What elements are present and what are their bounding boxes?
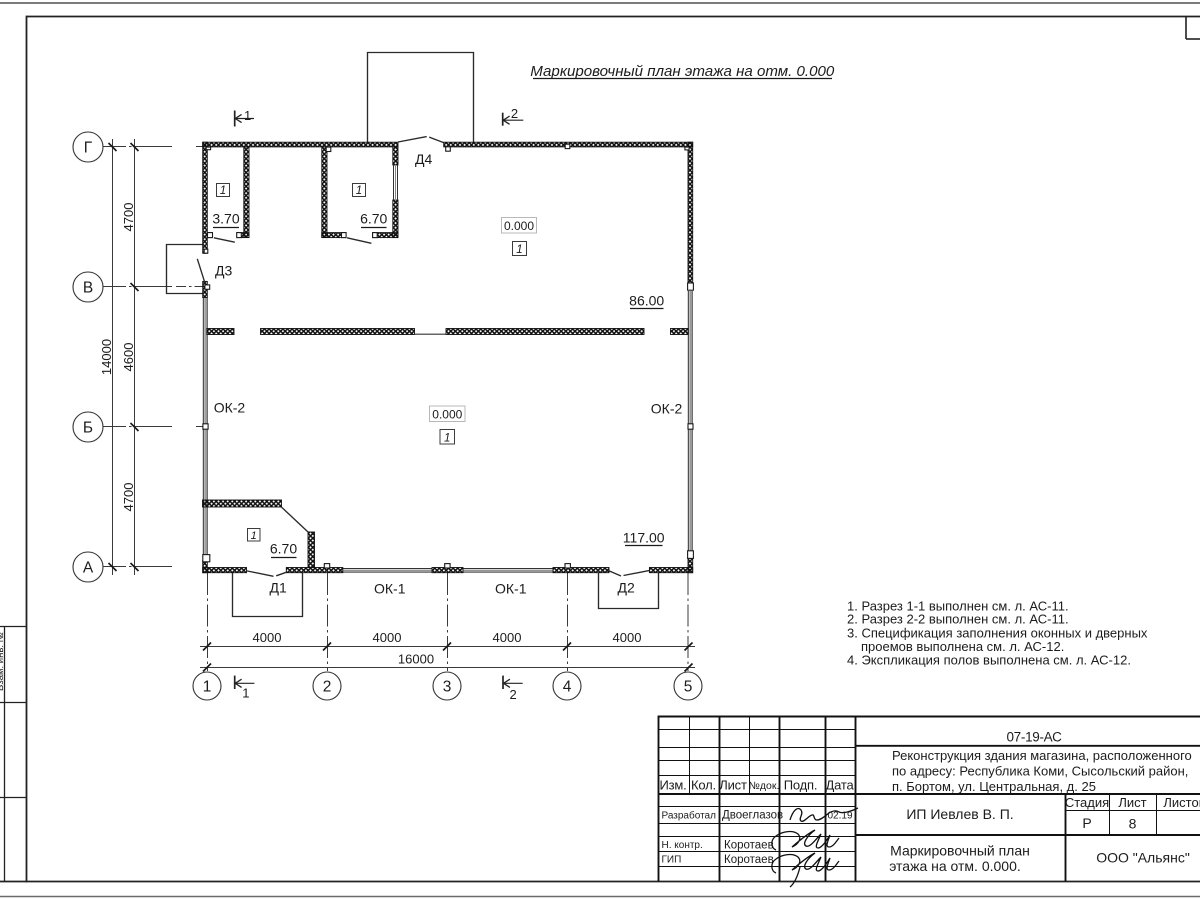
svg-text:Коротаев: Коротаев — [724, 839, 774, 851]
svg-text:07-19-АС: 07-19-АС — [1006, 730, 1062, 745]
svg-text:Лист: Лист — [1118, 795, 1146, 810]
svg-text:6.70: 6.70 — [270, 541, 297, 557]
svg-text:ОК-2: ОК-2 — [214, 400, 246, 416]
svg-text:Лист: Лист — [719, 777, 747, 792]
svg-text:4. Экспликация полов выполнена: 4. Экспликация полов выполнена см. л. АС… — [847, 653, 1131, 668]
svg-text:проемов выполнена см. л. АС-12: проемов выполнена см. л. АС-12. — [861, 639, 1064, 654]
svg-text:1: 1 — [516, 244, 522, 256]
svg-text:ИП Иевлев В. П.: ИП Иевлев В. П. — [906, 806, 1013, 822]
svg-text:Изм.: Изм. — [659, 777, 686, 792]
svg-text:4000: 4000 — [493, 630, 522, 645]
svg-text:ОК-1: ОК-1 — [374, 581, 406, 597]
svg-text:Маркировочный план: Маркировочный план — [890, 843, 1030, 859]
svg-text:Листов: Листов — [1163, 795, 1200, 810]
svg-text:1: 1 — [220, 185, 226, 197]
svg-text:п. Бортом, ул. Центральная, д.: п. Бортом, ул. Центральная, д. 25 — [892, 779, 1096, 794]
svg-text:ОК-1: ОК-1 — [495, 581, 527, 597]
svg-text:Маркировочный план этажа на от: Маркировочный план этажа на отм. 0.000 — [530, 63, 835, 80]
svg-text:А: А — [83, 560, 94, 577]
svg-text:ГИП: ГИП — [662, 855, 682, 866]
svg-text:86.00: 86.00 — [629, 293, 664, 309]
svg-text:№док.: №док. — [749, 780, 780, 792]
svg-text:Дата: Дата — [826, 777, 855, 792]
svg-text:1: 1 — [251, 530, 257, 542]
svg-text:2: 2 — [323, 679, 332, 696]
svg-text:Кол.: Кол. — [691, 777, 716, 792]
svg-text:4600: 4600 — [121, 343, 136, 372]
svg-text:Реконструкция здания магазина,: Реконструкция здания магазина, расположе… — [892, 748, 1192, 763]
svg-text:4000: 4000 — [613, 630, 642, 645]
svg-text:В: В — [83, 280, 93, 297]
svg-text:Д2: Д2 — [618, 579, 635, 595]
svg-text:Д3: Д3 — [215, 263, 232, 279]
svg-text:1: 1 — [203, 679, 212, 696]
svg-text:117.00: 117.00 — [623, 530, 665, 546]
svg-text:4000: 4000 — [373, 630, 402, 645]
svg-text:1: 1 — [244, 108, 251, 123]
svg-text:Взам. инв. №: Взам. инв. № — [0, 632, 6, 691]
svg-text:3: 3 — [443, 679, 452, 696]
svg-text:Р: Р — [1082, 815, 1091, 831]
svg-text:Д4: Д4 — [415, 151, 432, 167]
svg-text:4700: 4700 — [121, 483, 136, 512]
svg-text:ООО "Альянс": ООО "Альянс" — [1096, 850, 1190, 866]
svg-text:2: 2 — [510, 687, 517, 702]
svg-text:Коротаев: Коротаев — [724, 854, 774, 866]
svg-text:3.70: 3.70 — [212, 211, 239, 227]
svg-text:4: 4 — [563, 679, 572, 696]
svg-text:Б: Б — [83, 420, 93, 437]
svg-text:1: 1 — [444, 432, 450, 444]
svg-text:этажа на отм. 0.000.: этажа на отм. 0.000. — [889, 858, 1021, 874]
svg-text:6.70: 6.70 — [360, 211, 387, 227]
svg-text:Стадия: Стадия — [1065, 795, 1109, 810]
svg-text:Двоеглазов: Двоеглазов — [722, 810, 783, 822]
svg-text:Д1: Д1 — [270, 579, 287, 595]
svg-text:5: 5 — [684, 679, 693, 696]
svg-text:4000: 4000 — [253, 630, 282, 645]
svg-text:8: 8 — [1129, 816, 1137, 832]
svg-text:2: 2 — [511, 106, 518, 121]
svg-text:по адресу: Республика Коми, Сы: по адресу: Республика Коми, Сысольский р… — [892, 764, 1188, 779]
svg-text:1: 1 — [356, 185, 362, 197]
svg-text:2. Разрез 2-2 выполнен см. л.: 2. Разрез 2-2 выполнен см. л. АС-11. — [847, 612, 1069, 627]
svg-text:0.000: 0.000 — [504, 219, 534, 233]
svg-text:0.000: 0.000 — [432, 407, 462, 421]
svg-text:14000: 14000 — [99, 339, 114, 375]
svg-text:16000: 16000 — [398, 652, 434, 667]
svg-text:Г: Г — [84, 140, 93, 157]
svg-text:Разработал: Разработал — [662, 809, 717, 821]
svg-text:4700: 4700 — [121, 203, 136, 232]
svg-text:Подп.: Подп. — [784, 777, 818, 792]
svg-text:1: 1 — [242, 685, 249, 700]
svg-text:Н. контр.: Н. контр. — [662, 840, 703, 851]
svg-text:ОК-2: ОК-2 — [651, 401, 683, 417]
